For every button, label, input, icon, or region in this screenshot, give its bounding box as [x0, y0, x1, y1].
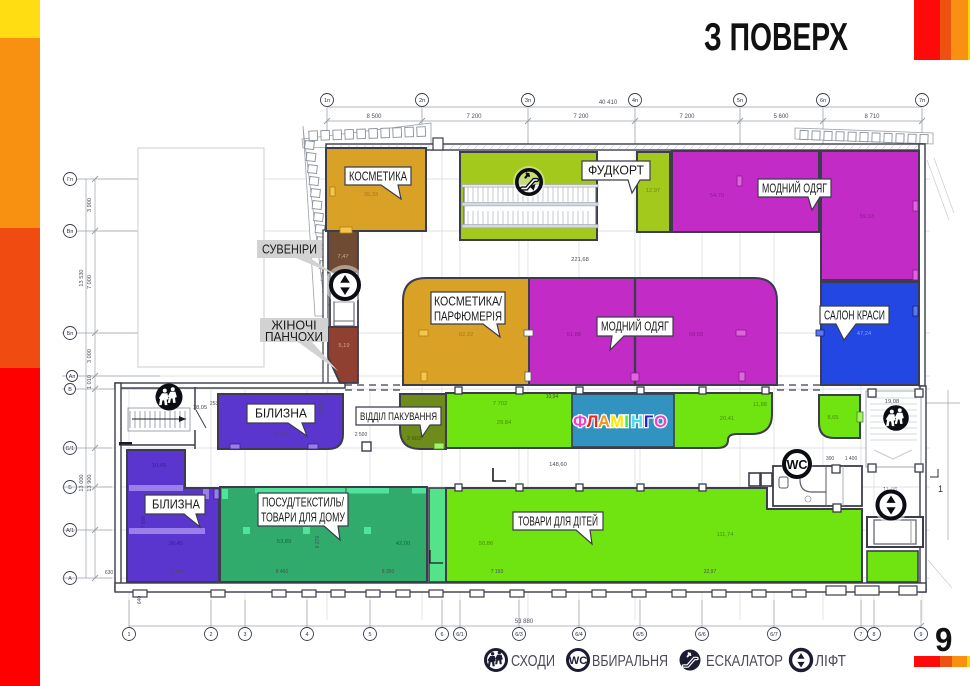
svg-text:ВБИРАЛЬНЯ: ВБИРАЛЬНЯ	[592, 653, 668, 670]
svg-text:8 340: 8 340	[275, 432, 288, 438]
svg-text:7 200: 7 200	[573, 114, 589, 120]
svg-text:20,41: 20,41	[720, 416, 735, 422]
svg-text:6/6: 6/6	[698, 632, 706, 638]
svg-text:7 000: 7 000	[87, 275, 93, 289]
svg-text:СУВЕНІРИ: СУВЕНІРИ	[262, 243, 317, 257]
svg-text:2: 2	[210, 632, 213, 638]
svg-text:А: А	[68, 576, 72, 582]
svg-text:8 460: 8 460	[276, 569, 289, 575]
svg-text:300: 300	[826, 456, 835, 462]
svg-text:11,88: 11,88	[753, 402, 767, 408]
svg-text:62,22: 62,22	[459, 332, 474, 338]
svg-text:ТОВАРИ ДЛЯ ДОМУ: ТОВАРИ ДЛЯ ДОМУ	[261, 511, 345, 525]
svg-text:7 600: 7 600	[141, 516, 147, 529]
svg-text:9: 9	[935, 621, 952, 658]
svg-text:WC: WC	[569, 655, 587, 667]
svg-text:18,05: 18,05	[193, 405, 208, 411]
svg-text:2 500: 2 500	[355, 432, 368, 438]
svg-text:148,60: 148,60	[549, 462, 567, 468]
svg-text:БІЛИЗНА: БІЛИЗНА	[152, 498, 201, 512]
svg-text:4п: 4п	[632, 98, 638, 104]
svg-text:З ПОВЕРХ: З ПОВЕРХ	[704, 16, 848, 59]
svg-text:68,58: 68,58	[689, 332, 704, 338]
svg-text:35,33: 35,33	[364, 192, 379, 198]
svg-text:640: 640	[137, 596, 143, 605]
svg-text:12,97: 12,97	[646, 188, 661, 194]
svg-text:7: 7	[860, 632, 863, 638]
svg-text:МОДНИЙ ОДЯГ: МОДНИЙ ОДЯГ	[601, 319, 669, 334]
svg-text:КОСМЕТИКА/: КОСМЕТИКА/	[434, 295, 502, 309]
svg-text:3п: 3п	[525, 98, 531, 104]
svg-text:10,94: 10,94	[546, 394, 559, 400]
svg-text:5 600: 5 600	[773, 114, 789, 120]
svg-text:6/5: 6/5	[636, 632, 644, 638]
svg-text:50,86: 50,86	[479, 541, 494, 547]
svg-text:9: 9	[920, 632, 923, 638]
svg-text:51,88: 51,88	[567, 332, 582, 338]
svg-text:1п: 1п	[324, 98, 330, 104]
svg-text:7 702: 7 702	[493, 401, 508, 407]
svg-text:40 410: 40 410	[599, 100, 618, 106]
svg-text:5 700: 5 700	[171, 569, 184, 575]
svg-text:2п: 2п	[419, 98, 425, 104]
svg-text:13 900: 13 900	[87, 474, 93, 491]
svg-text:1 400: 1 400	[845, 456, 858, 462]
svg-text:6/4: 6/4	[575, 632, 583, 638]
svg-text:ПОСУД/ТЕКСТИЛЬ/: ПОСУД/ТЕКСТИЛЬ/	[262, 496, 344, 510]
svg-text:6/7: 6/7	[770, 632, 778, 638]
svg-text:10,45: 10,45	[152, 463, 167, 469]
svg-text:ЕСКАЛАТОР: ЕСКАЛАТОР	[706, 653, 783, 670]
svg-text:42,00: 42,00	[396, 541, 411, 547]
svg-text:19,08: 19,08	[885, 399, 900, 405]
svg-text:ТОВАРИ ДЛЯ ДІТЕЙ: ТОВАРИ ДЛЯ ДІТЕЙ	[518, 514, 598, 529]
svg-text:6п: 6п	[820, 98, 826, 104]
svg-text:Бп: Бп	[67, 331, 74, 337]
svg-text:6: 6	[441, 632, 444, 638]
svg-text:6/1: 6/1	[456, 632, 464, 638]
svg-text:Н: Н	[631, 413, 643, 431]
svg-text:36,45: 36,45	[169, 541, 184, 547]
svg-text:1: 1	[938, 484, 943, 494]
svg-text:5,19: 5,19	[338, 343, 349, 349]
svg-text:САЛОН КРАСИ: САЛОН КРАСИ	[824, 309, 885, 323]
svg-text:221,68: 221,68	[571, 257, 589, 263]
svg-text:О: О	[654, 413, 667, 431]
svg-text:53,89: 53,89	[277, 539, 292, 545]
svg-text:22,97: 22,97	[704, 569, 717, 575]
svg-text:13 530: 13 530	[79, 269, 85, 286]
svg-text:29,84: 29,84	[497, 420, 512, 426]
svg-text:ПАНЧОХИ: ПАНЧОХИ	[265, 330, 323, 344]
svg-text:8,65: 8,65	[827, 415, 838, 421]
svg-text:Ап: Ап	[69, 374, 76, 380]
svg-text:СХОДИ: СХОДИ	[511, 653, 555, 670]
svg-text:5п: 5п	[737, 98, 743, 104]
svg-text:3 000: 3 000	[87, 349, 93, 363]
svg-text:КОСМЕТИКА: КОСМЕТИКА	[349, 170, 407, 184]
svg-text:В: В	[68, 387, 72, 393]
svg-text:1: 1	[128, 632, 131, 638]
svg-text:6 270: 6 270	[315, 536, 321, 549]
svg-text:8 500: 8 500	[366, 114, 382, 120]
svg-text:ПАРФЮМЕРІЯ: ПАРФЮМЕРІЯ	[434, 310, 502, 324]
svg-text:7 200: 7 200	[466, 114, 482, 120]
svg-text:Г: Г	[644, 413, 654, 431]
svg-text:WC: WC	[787, 458, 808, 472]
svg-text:7 200: 7 200	[679, 114, 695, 120]
svg-text:8: 8	[873, 632, 876, 638]
svg-text:Б/1: Б/1	[66, 446, 74, 452]
svg-text:Гп: Гп	[67, 177, 73, 183]
svg-text:3: 3	[244, 632, 247, 638]
svg-text:ФУДКОРТ: ФУДКОРТ	[588, 164, 644, 178]
svg-text:7п: 7п	[919, 98, 925, 104]
svg-text:630: 630	[105, 570, 114, 576]
svg-text:Вп: Вп	[67, 229, 74, 235]
svg-text:А/1: А/1	[66, 528, 74, 534]
svg-text:1 010: 1 010	[87, 375, 93, 389]
svg-text:253: 253	[210, 401, 219, 407]
svg-text:ЛІФТ: ЛІФТ	[815, 653, 846, 670]
svg-text:Ф: Ф	[573, 413, 587, 431]
svg-text:47,24: 47,24	[857, 331, 872, 337]
svg-text:І: І	[624, 413, 629, 431]
svg-text:6/3: 6/3	[515, 632, 523, 638]
svg-text:Б: Б	[68, 485, 72, 491]
svg-text:А: А	[598, 413, 610, 431]
svg-text:8 710: 8 710	[864, 114, 880, 120]
svg-text:111,74: 111,74	[717, 532, 735, 538]
svg-text:Л: Л	[587, 413, 599, 431]
svg-text:БІЛИЗНА: БІЛИЗНА	[255, 407, 308, 421]
svg-text:54,70: 54,70	[710, 193, 725, 199]
svg-text:МОДНИЙ ОДЯГ: МОДНИЙ ОДЯГ	[762, 181, 827, 196]
svg-text:3 602: 3 602	[407, 436, 422, 442]
svg-text:59,93: 59,93	[860, 214, 875, 220]
svg-text:7 193: 7 193	[491, 569, 504, 575]
svg-text:М: М	[610, 413, 624, 431]
svg-text:8 350: 8 350	[382, 569, 395, 575]
svg-text:4: 4	[306, 632, 309, 638]
svg-text:5: 5	[369, 632, 372, 638]
svg-text:53 880: 53 880	[515, 619, 534, 625]
svg-text:13 000: 13 000	[79, 474, 85, 491]
svg-text:3 900: 3 900	[87, 198, 93, 212]
svg-text:9 800: 9 800	[319, 401, 325, 414]
svg-text:ВІДДІЛ ПАКУВАННЯ: ВІДДІЛ ПАКУВАННЯ	[360, 411, 437, 423]
svg-text:7,47: 7,47	[337, 254, 348, 260]
